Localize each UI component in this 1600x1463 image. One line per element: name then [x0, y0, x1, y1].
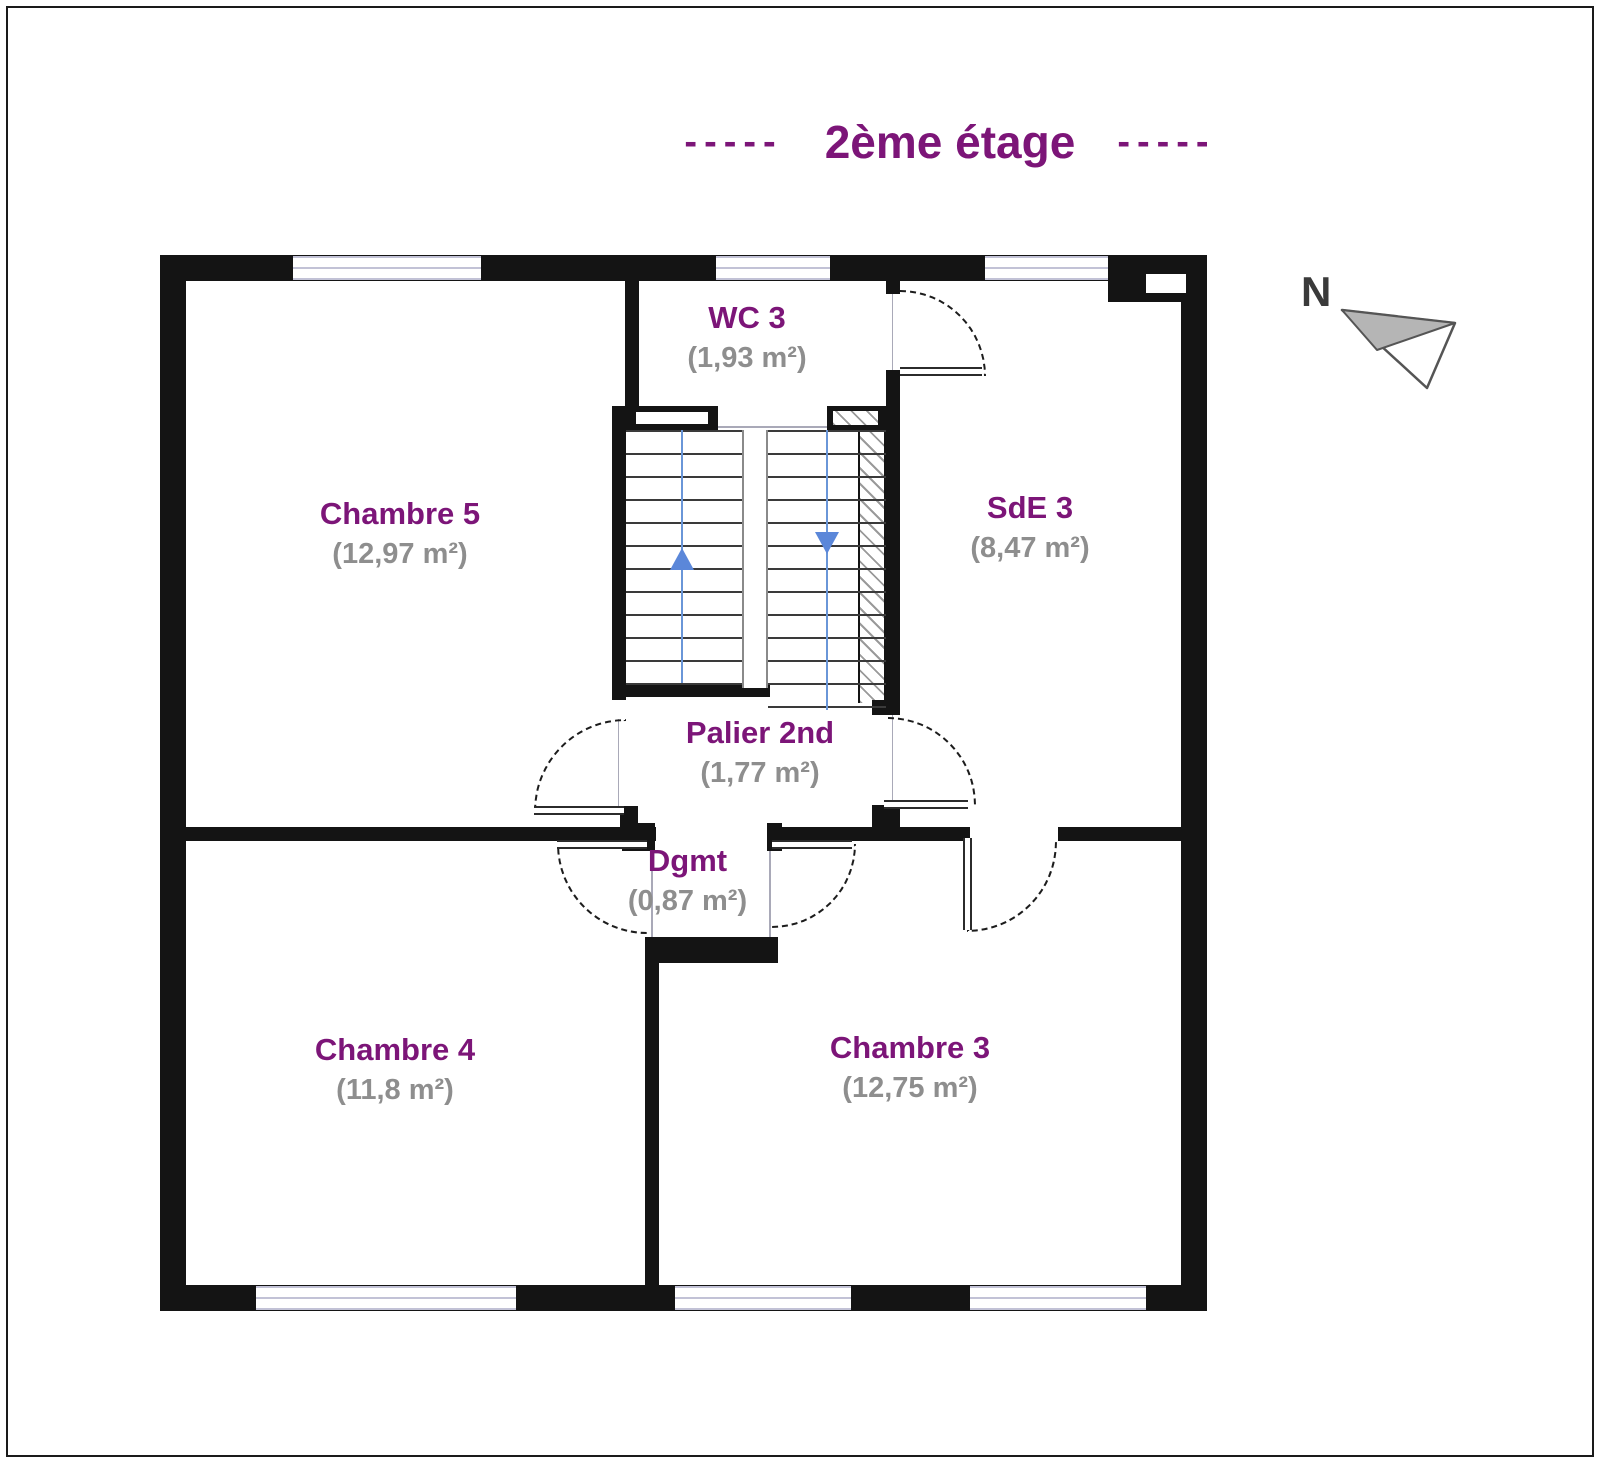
- window-wc3: [716, 256, 830, 280]
- wall-chambre4-chambre3-divider: [645, 950, 659, 1311]
- title-left-dashes: -----: [684, 121, 782, 164]
- room-label-sde3: SdE 3 (8,47 m²): [905, 488, 1155, 568]
- room-label-chambre5: Chambre 5 (12,97 m²): [250, 494, 550, 574]
- stairs-top-pocket: [636, 412, 708, 424]
- window-chambre5: [293, 256, 481, 280]
- room-name-dgmt: Dgmt: [595, 841, 780, 881]
- room-name-palier: Palier 2nd: [640, 713, 880, 753]
- floor-plan-canvas: ----- 2ème étage ----- N: [0, 0, 1600, 1463]
- wall-chambre5-chambre4-divider: [186, 827, 656, 841]
- room-name-chambre5: Chambre 5: [250, 494, 550, 534]
- north-compass: N: [1295, 258, 1470, 408]
- room-area-wc3: (1,93 m²): [632, 338, 862, 378]
- wall-chambre3-north-east: [1058, 827, 1181, 841]
- wall-sde3-stairs: [886, 418, 900, 715]
- chambre3-west-door-leaf: [772, 840, 852, 849]
- stairs-stringer: [742, 430, 768, 688]
- room-name-chambre4: Chambre 4: [245, 1030, 545, 1070]
- room-label-wc3: WC 3 (1,93 m²): [632, 298, 862, 378]
- chimney-vent-slot: [1146, 274, 1186, 293]
- room-name-sde3: SdE 3: [905, 488, 1155, 528]
- room-area-chambre3: (12,75 m²): [760, 1068, 1060, 1108]
- hatch-wall-top: [833, 411, 878, 425]
- page-title: 2ème étage: [825, 115, 1076, 169]
- wall-dgmt-south: [645, 937, 778, 963]
- north-label: N: [1301, 268, 1331, 315]
- wall-exterior-left: [160, 255, 186, 1311]
- room-area-palier: (1,77 m²): [640, 753, 880, 793]
- floor-title: ----- 2ème étage -----: [700, 115, 1200, 169]
- north-arrow-icon: N: [1295, 258, 1470, 403]
- room-name-chambre3: Chambre 3: [760, 1028, 1060, 1068]
- wall-wc3-sde3-top: [886, 281, 900, 294]
- room-name-wc3: WC 3: [632, 298, 862, 338]
- window-sde3: [985, 256, 1108, 280]
- room-label-chambre4: Chambre 4 (11,8 m²): [245, 1030, 545, 1110]
- sde3-north-doorway-line: [892, 294, 893, 370]
- room-label-dgmt: Dgmt (0,87 m²): [595, 841, 780, 921]
- stairs-down-arrow: [815, 532, 839, 554]
- room-label-palier: Palier 2nd (1,77 m²): [640, 713, 880, 793]
- room-area-dgmt: (0,87 m²): [595, 881, 780, 921]
- window-chambre3-left: [675, 1286, 851, 1310]
- room-area-chambre4: (11,8 m²): [245, 1070, 545, 1110]
- stairs-up-arrow: [670, 548, 694, 570]
- title-right-dashes: -----: [1117, 121, 1215, 164]
- stairs-down-guideline: [826, 430, 828, 710]
- room-area-sde3: (8,47 m²): [905, 528, 1155, 568]
- wall-stairs-west: [612, 406, 626, 700]
- window-chambre3-right: [970, 1286, 1146, 1310]
- room-label-chambre3: Chambre 3 (12,75 m²): [760, 1028, 1060, 1108]
- chambre3-east-door-leaf: [963, 838, 972, 930]
- chambre5-door-leaf: [534, 806, 624, 815]
- wall-exterior-right: [1181, 255, 1207, 1311]
- sde3-north-door-leaf: [900, 367, 982, 376]
- stairs-landing-edge: [718, 426, 827, 428]
- room-area-chambre5: (12,97 m²): [250, 534, 550, 574]
- wall-chambre3-north-west: [767, 827, 970, 841]
- window-chambre4: [256, 1286, 516, 1310]
- sde3-south-door-leaf: [884, 800, 968, 809]
